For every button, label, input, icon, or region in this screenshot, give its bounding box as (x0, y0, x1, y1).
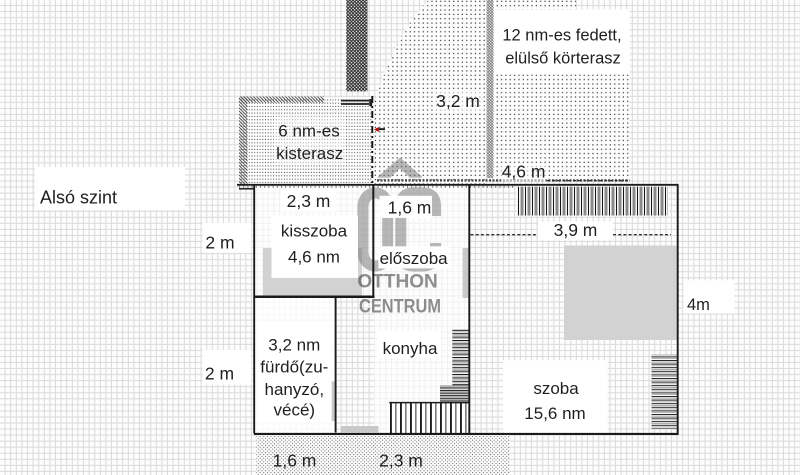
svg-text:kisszoba: kisszoba (281, 222, 348, 241)
svg-text:konyha: konyha (383, 339, 438, 358)
svg-text:4,6 m: 4,6 m (502, 162, 546, 182)
svg-text:1,6 m: 1,6 m (273, 451, 317, 471)
svg-text:előszoba: előszoba (380, 249, 449, 268)
svg-text:kisterasz: kisterasz (276, 144, 343, 163)
svg-text:3,2 nm: 3,2 nm (268, 336, 320, 355)
svg-text:2 m: 2 m (205, 233, 234, 253)
svg-text:Alsó szint: Alsó szint (40, 188, 117, 208)
svg-text:2 m: 2 m (205, 364, 234, 384)
svg-text:szoba: szoba (533, 379, 579, 398)
svg-text:4,6 nm: 4,6 nm (288, 248, 340, 267)
svg-text:3,2 m: 3,2 m (436, 91, 480, 111)
svg-text:elülső körterasz: elülső körterasz (505, 50, 621, 68)
svg-text:2,3 m: 2,3 m (379, 451, 423, 471)
svg-text:hanyzó,: hanyzó, (265, 380, 325, 399)
svg-text:1,6 m: 1,6 m (388, 198, 432, 218)
svg-text:OTTHON: OTTHON (357, 270, 437, 292)
svg-text:6 nm-es: 6 nm-es (278, 122, 339, 141)
svg-text:CENTRUM: CENTRUM (359, 296, 441, 318)
svg-text:vécé): vécé) (274, 400, 316, 419)
svg-text:12 nm-es fedett,: 12 nm-es fedett, (502, 27, 621, 45)
svg-text:3,9 m: 3,9 m (554, 220, 598, 240)
svg-text:15,6 nm: 15,6 nm (524, 404, 585, 423)
svg-text:fürdő(zu-: fürdő(zu- (260, 358, 328, 377)
svg-text:4m: 4m (687, 296, 710, 314)
svg-text:2,3 m: 2,3 m (287, 191, 331, 211)
